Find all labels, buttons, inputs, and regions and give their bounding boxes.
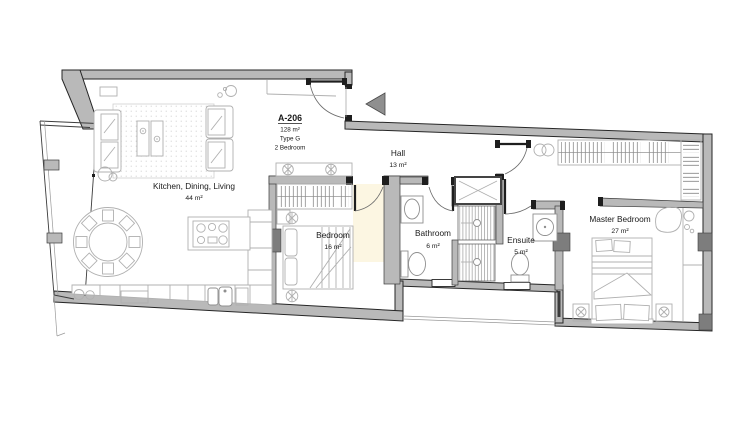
pillow — [285, 258, 297, 285]
svg-text:6 m²: 6 m² — [426, 243, 440, 250]
door-arc — [505, 206, 531, 214]
hanger-row — [280, 186, 308, 207]
bath-wall-vent — [432, 280, 455, 287]
toilet — [511, 253, 529, 282]
room-label-bathroom: Bathroom 6 m² — [415, 228, 451, 250]
hall — [534, 140, 701, 200]
wall-bedroom-top — [269, 176, 352, 184]
ensuite-door — [505, 179, 531, 214]
wall-vent — [100, 87, 117, 96]
stove — [188, 217, 250, 250]
kitchen-cabinets — [248, 210, 272, 285]
room-label-master: Master Bedroom 27 m² — [589, 214, 650, 235]
plant-icon — [286, 212, 298, 224]
kitchen-sink — [208, 287, 232, 306]
svg-text:Kitchen, Dining, Living: Kitchen, Dining, Living — [153, 181, 235, 191]
door-arc — [310, 84, 344, 118]
ensuite-sink — [533, 214, 557, 241]
window-mullion — [44, 160, 59, 170]
master-bedroom — [573, 207, 702, 324]
floor-plan-page: A-206 128 m² Type G 2 Bedroom Kitchen, D… — [0, 0, 738, 433]
dining-table — [74, 208, 143, 277]
armchair — [206, 106, 233, 138]
window-mullion — [47, 233, 62, 243]
cushion — [596, 239, 613, 251]
unit-id: A-206 — [278, 113, 302, 123]
ensuite — [511, 214, 557, 282]
entry-arrow-icon — [366, 93, 385, 115]
duct-shaft-icon — [455, 177, 501, 204]
svg-text:Master Bedroom: Master Bedroom — [589, 214, 650, 224]
bathroom-sink — [401, 196, 423, 223]
hanger-row — [338, 186, 349, 207]
window-outer-line — [40, 121, 54, 295]
coffee-table — [137, 121, 149, 156]
hanger-row — [561, 142, 605, 163]
rug — [113, 104, 214, 178]
corner-column — [699, 314, 712, 330]
ceiling-light — [534, 144, 554, 156]
pillow — [285, 229, 297, 256]
plant-icon — [286, 290, 298, 302]
master-bed — [591, 238, 653, 324]
svg-text:5 m²: 5 m² — [514, 249, 528, 256]
unit-area: 128 m² — [280, 127, 300, 134]
hanger-row — [683, 172, 699, 183]
hanger-row — [683, 142, 699, 153]
bathroom-door — [429, 186, 453, 211]
entry-door — [306, 78, 347, 118]
bedroom-wardrobe — [277, 184, 352, 209]
pillow — [624, 304, 650, 320]
wall-closet-master — [600, 198, 703, 208]
hanger-row — [683, 186, 699, 197]
shower — [458, 244, 495, 281]
wall-top-living — [62, 70, 352, 79]
wall-notch-step — [395, 281, 403, 315]
sofa — [94, 110, 121, 172]
unit-bedrooms: 2 Bedroom — [275, 145, 306, 152]
hanger-row — [611, 142, 641, 163]
room-label-ensuite: Ensuite 5 m² — [507, 235, 535, 256]
wall-right — [703, 134, 712, 330]
svg-text:16 m²: 16 m² — [324, 244, 342, 251]
wall-bedroom-bath — [384, 176, 400, 284]
hanger-row — [312, 186, 334, 207]
wall-top-hall — [345, 121, 705, 142]
svg-text:Ensuite: Ensuite — [507, 235, 535, 245]
svg-text:Bathroom: Bathroom — [415, 228, 451, 238]
entry-shelf — [267, 94, 336, 96]
master-wall-column — [698, 233, 712, 251]
hanger-row — [683, 155, 699, 166]
side-table — [684, 211, 694, 233]
ensuite-wall-vent — [504, 283, 530, 290]
room-label-hall: Hall 13 m² — [389, 148, 407, 169]
cushion — [614, 241, 631, 253]
svg-text:Bedroom: Bedroom — [316, 230, 350, 240]
svg-text:27 m²: 27 m² — [611, 228, 629, 235]
nightstand — [656, 304, 672, 321]
master-door — [495, 140, 531, 174]
master-side-window — [558, 291, 561, 317]
armchair — [206, 139, 233, 171]
unit-type: Type G — [280, 136, 300, 143]
svg-text:Hall: Hall — [391, 148, 405, 158]
coffee-table — [151, 121, 163, 156]
svg-text:44 m²: 44 m² — [185, 195, 203, 202]
ceiling-light — [218, 86, 237, 98]
room-label-kitchen: Kitchen, Dining, Living 44 m² — [153, 181, 235, 202]
floor-plan: A-206 128 m² Type G 2 Bedroom Kitchen, D… — [0, 0, 738, 433]
svg-text:13 m²: 13 m² — [389, 162, 407, 169]
armchair — [656, 207, 682, 232]
toilet — [401, 251, 426, 277]
door-arc — [429, 187, 453, 211]
console-table — [276, 163, 352, 176]
door-arc — [505, 148, 527, 174]
pillow — [596, 304, 622, 320]
shower — [458, 206, 495, 240]
hanger-row — [647, 142, 669, 163]
walkin-wardrobe — [558, 140, 701, 200]
unit-info-block: A-206 128 m² Type G 2 Bedroom — [275, 113, 306, 152]
